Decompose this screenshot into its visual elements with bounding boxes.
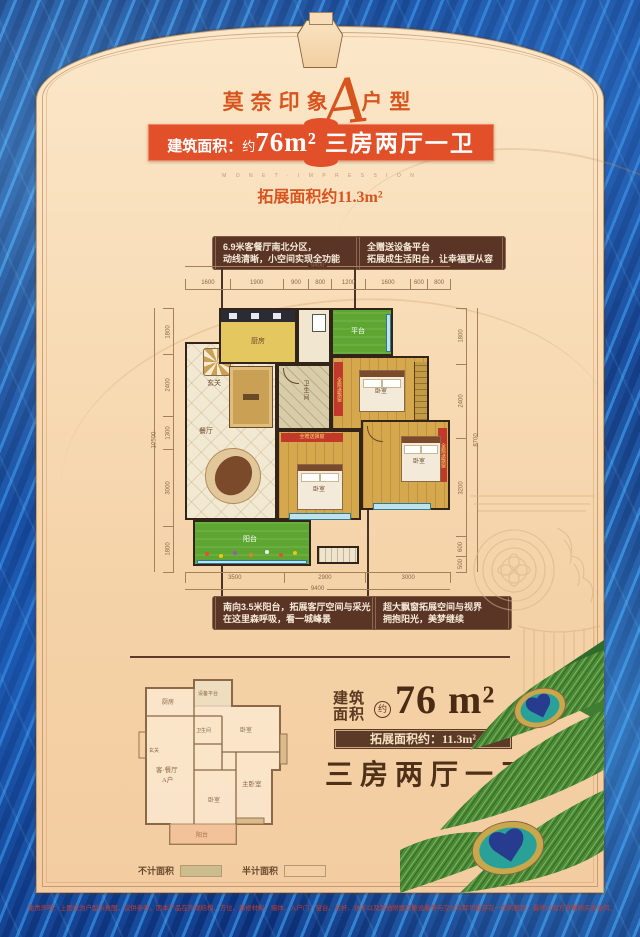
dim-segment: 800 bbox=[427, 279, 450, 290]
dim-segment: 900 bbox=[283, 279, 309, 290]
dim-segment: 800 bbox=[308, 279, 331, 290]
mini-floor-plan: 厨房 设备平台 卫生间 卧室 客·餐厅 A户 主卧室 卧室 阳台 玄关 bbox=[132, 674, 304, 860]
door-arc-icon bbox=[367, 426, 383, 442]
dim-left-segments: 1800 2400 1300 3000 1800 bbox=[163, 308, 174, 573]
banner-area: 76m² bbox=[255, 127, 317, 157]
mini-room-label: 卧室 bbox=[240, 726, 252, 734]
dim-bottom-segments: 3500 2900 3000 bbox=[185, 572, 451, 583]
mini-bay-outline bbox=[139, 732, 146, 758]
mini-room-label: 玄关 bbox=[149, 747, 159, 754]
title-left: 莫奈印象 bbox=[223, 90, 335, 114]
legend-swatch-half-area bbox=[284, 865, 326, 877]
kitchen-counter-icon bbox=[221, 310, 295, 322]
room-bedroom-3: 全赠送飘窗 卧室 bbox=[361, 420, 450, 510]
callout-line: 6.9米客餐厅南北分区， bbox=[223, 241, 355, 253]
dining-table-icon bbox=[229, 366, 273, 428]
dim-segment: 2400 bbox=[163, 354, 174, 415]
dim-segment: 3000 bbox=[365, 572, 450, 583]
gift-ribbon: 全赠送飘窗 bbox=[281, 433, 343, 442]
window-strip-icon bbox=[197, 560, 307, 564]
poster: 莫奈印象A户型 建筑面积：约76m²三房两厅一卫 M O N E T · I M… bbox=[0, 0, 640, 937]
mini-room-label: 设备平台 bbox=[198, 690, 218, 697]
room-label: 卧室 bbox=[413, 456, 425, 465]
room-platform: 平台 bbox=[331, 308, 393, 356]
build-area-line: 建筑 bbox=[333, 691, 365, 707]
approx-circle-badge: 约 bbox=[374, 701, 391, 718]
callout-line: 全赠送设备平台 bbox=[367, 241, 495, 253]
dim-bottom-total: 9400 bbox=[185, 586, 450, 592]
room-living-dining: 玄关 餐厅 bbox=[185, 342, 277, 520]
room-label: 卧室 bbox=[375, 386, 387, 395]
mini-room-label: 客·餐厅 bbox=[156, 765, 178, 774]
mini-bay-shade bbox=[236, 818, 264, 824]
room-label: 玄关 bbox=[207, 378, 221, 388]
dim-segment: 1800 bbox=[456, 308, 467, 364]
banner-approx: 约 bbox=[242, 139, 255, 154]
room-bedroom-2: 全赠送飘窗 卧室 bbox=[277, 430, 361, 520]
keystone-ornament-icon bbox=[297, 20, 343, 68]
room-bathroom: 卫生间 bbox=[277, 364, 331, 430]
dim-segment: 2900 bbox=[284, 572, 366, 583]
room-label: 厨房 bbox=[251, 336, 265, 346]
tagline: M O N E T · I M P R E S S I O N bbox=[0, 173, 640, 179]
callout-line: 南向3.5米阳台，拓展客厅空间与采光 bbox=[223, 601, 375, 613]
dim-label: 9400 bbox=[311, 586, 324, 592]
legend-label: 不计面积 bbox=[138, 864, 174, 877]
callout-line: 在这里森呼吸，看一城峰景 bbox=[223, 613, 375, 625]
dim-segment: 3500 bbox=[185, 572, 284, 583]
mini-room-label: 卫生间 bbox=[196, 727, 211, 734]
dim-label: 8700 bbox=[474, 433, 480, 446]
mini-room-label: 厨房 bbox=[162, 698, 174, 706]
room-balcony: 阳台 bbox=[193, 520, 311, 566]
keystone-tab-icon bbox=[309, 12, 333, 25]
legend-label: 半计面积 bbox=[242, 864, 278, 877]
title-right: 户型 bbox=[361, 90, 417, 114]
dim-segment: 1800 bbox=[163, 526, 174, 572]
dim-segment: 1900 bbox=[230, 279, 283, 290]
dim-top-segments: 1600 1900 900 800 1200 1600 600 800 bbox=[185, 279, 451, 290]
banner-type: 三房两厅一卫 bbox=[325, 131, 475, 156]
bay-window-icon bbox=[289, 513, 351, 520]
dim-segment: 3000 bbox=[163, 449, 174, 525]
plan-legend: 不计面积 半计面积 bbox=[138, 864, 326, 877]
dim-label: 9400 bbox=[311, 263, 324, 269]
mini-room-label: 主卧室 bbox=[242, 779, 262, 788]
expand-area-line: 拓展面积约11.3m² bbox=[0, 183, 640, 207]
dim-label: 10500 bbox=[151, 432, 157, 449]
dim-segment: 1200 bbox=[331, 279, 365, 290]
room-bedroom-1: 全赠送飘窗 卧室 bbox=[331, 356, 429, 430]
callout-bottom-left: 南向3.5米阳台，拓展客厅空间与采光 在这里森呼吸，看一城峰景 bbox=[212, 596, 386, 630]
room-kitchen: 厨房 bbox=[219, 308, 297, 364]
window-strip-icon bbox=[386, 314, 391, 352]
title-letter-a: A bbox=[321, 85, 369, 120]
mini-room-label: 卧室 bbox=[208, 796, 220, 804]
area-banner: 建筑面积：约76m²三房两厅一卫 bbox=[148, 124, 494, 161]
legend-swatch-no-area bbox=[180, 865, 222, 877]
room-label: 卧室 bbox=[313, 484, 325, 493]
door-arc-icon bbox=[283, 368, 299, 384]
dim-left-total: 10500 bbox=[149, 308, 159, 572]
dim-segment: 2400 bbox=[456, 364, 467, 438]
dim-top-total: 9400 bbox=[185, 263, 450, 269]
room-label: 餐厅 bbox=[199, 426, 213, 436]
plants-icon bbox=[205, 552, 209, 556]
mini-bay-shade bbox=[280, 734, 287, 764]
ac-platform-icon bbox=[317, 546, 359, 564]
build-area-label: 建筑 面积 bbox=[333, 691, 365, 723]
banner-label: 建筑面积： bbox=[167, 139, 242, 155]
room-label: 阳台 bbox=[243, 534, 257, 544]
mini-room-label: A户 bbox=[162, 775, 173, 784]
room-hall bbox=[297, 308, 331, 364]
build-area-line: 面积 bbox=[333, 707, 365, 723]
fridge-icon bbox=[312, 314, 326, 332]
room-label: 卫生间 bbox=[301, 380, 310, 401]
dim-segment: 1800 bbox=[163, 308, 174, 354]
dim-segment: 1600 bbox=[185, 279, 230, 290]
wardrobe-icon bbox=[414, 362, 427, 426]
dim-segment: 1300 bbox=[163, 416, 174, 450]
rug-icon bbox=[205, 448, 261, 504]
peacock-feather-icon bbox=[400, 640, 604, 893]
dim-segment: 600 bbox=[410, 279, 427, 290]
peacock-decoration bbox=[400, 640, 604, 893]
disclaimer-text: 免责声明：上图仅为户型示意图，仅供参考。因本产品在外观结构、方位、装修材料、墙体… bbox=[28, 903, 612, 912]
floor-plan: 玄关 餐厅 厨房 平台 卫生间 全赠送飘窗 卧室 bbox=[185, 308, 450, 572]
dim-segment: 1600 bbox=[365, 279, 410, 290]
gift-ribbon: 全赠送飘窗 bbox=[334, 362, 343, 416]
bay-window-icon bbox=[373, 503, 431, 510]
mini-room-label: 阳台 bbox=[196, 831, 208, 839]
room-label: 平台 bbox=[351, 326, 365, 336]
